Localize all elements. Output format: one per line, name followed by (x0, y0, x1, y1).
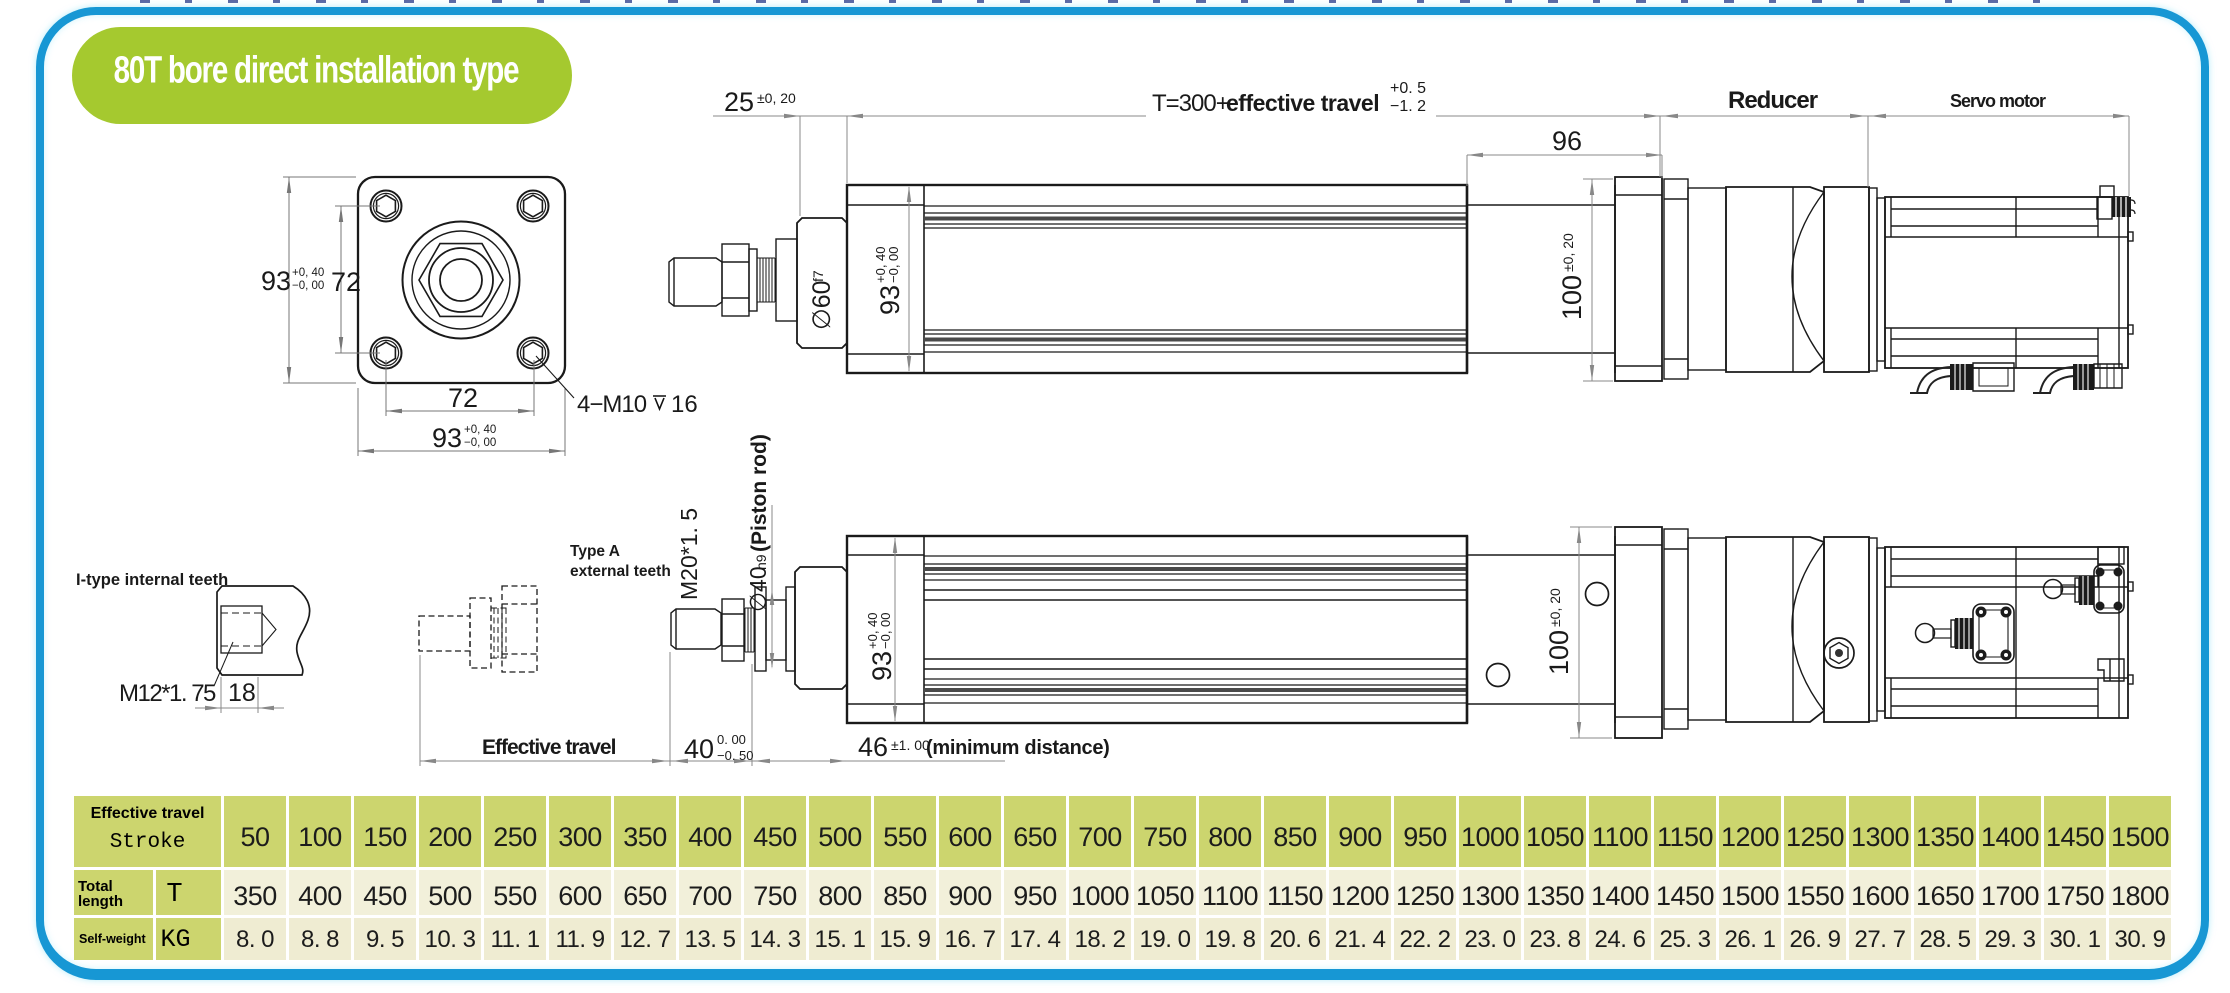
svg-text:−0, 00: −0, 00 (886, 246, 901, 283)
svg-text:−0, 00: −0, 00 (292, 280, 324, 292)
svg-text:M12*1. 75: M12*1. 75 (119, 680, 216, 707)
svg-text:Type A: Type A (570, 543, 620, 560)
svg-text:4−M10: 4−M10 (577, 391, 647, 418)
svg-text:25: 25 (724, 87, 754, 117)
svg-text:−0, 00: −0, 00 (464, 437, 496, 449)
svg-text:effective travel: effective travel (1226, 90, 1379, 116)
svg-text:+0, 40: +0, 40 (292, 267, 324, 279)
svg-text:100: 100 (1557, 275, 1587, 320)
svg-text:f7: f7 (810, 270, 826, 282)
svg-text:93: 93 (867, 651, 897, 681)
svg-text:+0. 5: +0. 5 (1390, 80, 1426, 97)
svg-text:∅40: ∅40 (745, 566, 771, 612)
svg-text:I-type internal teeth: I-type internal teeth (76, 571, 228, 589)
svg-text:72: 72 (448, 383, 478, 413)
svg-text:−1. 2: −1. 2 (1390, 98, 1426, 115)
svg-text:external teeth: external teeth (570, 563, 671, 580)
svg-text:h9: h9 (753, 554, 769, 570)
svg-text:+0, 40: +0, 40 (464, 424, 496, 436)
svg-text:(Piston rod): (Piston rod) (748, 434, 771, 552)
svg-text:−0, 00: −0, 00 (878, 612, 893, 649)
svg-text:−0. 50: −0. 50 (717, 748, 754, 763)
svg-text:16: 16 (671, 391, 698, 418)
svg-text:M20*1. 5: M20*1. 5 (676, 508, 702, 600)
svg-text:T=300+: T=300+ (1152, 90, 1229, 117)
svg-text:Servo motor: Servo motor (1950, 91, 2046, 111)
svg-text:18: 18 (228, 679, 256, 707)
svg-text:72: 72 (331, 267, 361, 297)
svg-text:±0, 20: ±0, 20 (757, 90, 796, 106)
svg-text:±1. 00: ±1. 00 (891, 737, 930, 753)
svg-text:∅60: ∅60 (808, 280, 836, 330)
svg-text:46: 46 (858, 732, 888, 762)
svg-text:0. 00: 0. 00 (717, 732, 746, 747)
svg-text:100: 100 (1544, 630, 1574, 675)
svg-text:±0, 20: ±0, 20 (1547, 588, 1563, 627)
svg-text:Effective travel: Effective travel (482, 736, 616, 759)
svg-text:96: 96 (1552, 126, 1582, 156)
svg-text:93: 93 (432, 423, 462, 453)
svg-text:40: 40 (684, 734, 714, 764)
svg-text:93: 93 (261, 266, 291, 296)
svg-text:±0, 20: ±0, 20 (1560, 233, 1576, 272)
svg-text:Reducer: Reducer (1728, 87, 1818, 114)
svg-text:93: 93 (875, 285, 905, 315)
svg-text:(minimum distance): (minimum distance) (926, 737, 1110, 759)
